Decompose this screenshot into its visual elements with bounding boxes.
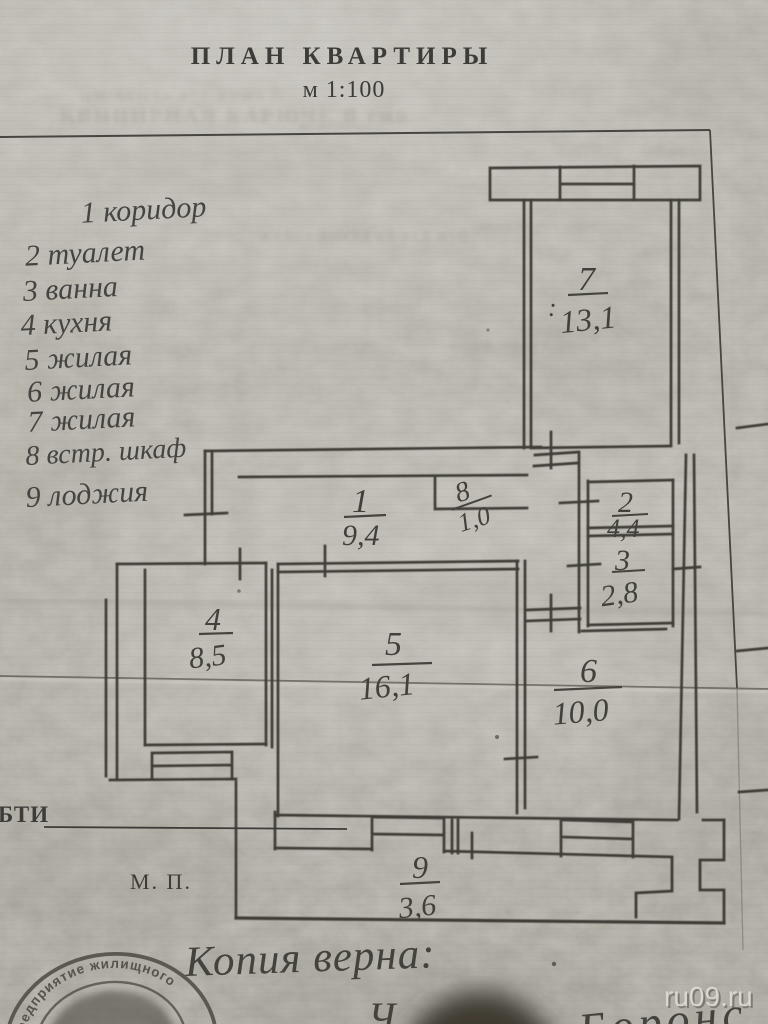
svg-text:3,6: 3,6 bbox=[396, 888, 438, 925]
svg-text:5: 5 bbox=[385, 626, 402, 663]
svg-text:мвыс ап нив лมых: мвыс ап нив лมых bbox=[480, 218, 598, 234]
svg-text:М. П.: М. П. bbox=[130, 869, 192, 894]
svg-text:ывапр мюежstarted: ывапр мюежstarted bbox=[450, 338, 587, 354]
svg-text:квр: квр bbox=[710, 368, 729, 383]
svg-text:Ч: Ч bbox=[368, 994, 398, 1024]
svg-text:6: 6 bbox=[580, 653, 597, 690]
svg-text:3 ванна: 3 ванна bbox=[21, 270, 119, 308]
svg-text:8,5: 8,5 bbox=[187, 638, 228, 675]
svg-text:жилон выквд ся вкд муб: жилон выквд ся вкд муб bbox=[259, 227, 470, 244]
svg-text:2,8: 2,8 bbox=[598, 575, 640, 613]
svg-text:БТИ: БТИ bbox=[0, 802, 49, 827]
svg-text:ым чтыва ате кнмч太: ым чтыва ате кнмч太 bbox=[80, 85, 287, 104]
svg-text:ru09.ru: ru09.ru bbox=[664, 981, 753, 1012]
svg-text:4: 4 bbox=[205, 601, 221, 637]
svg-text::: : bbox=[548, 293, 557, 322]
svg-text:9: 9 bbox=[412, 849, 428, 885]
svg-text:16,1: 16,1 bbox=[357, 665, 416, 707]
svg-text:двет жт: двет жт bbox=[640, 144, 685, 159]
svg-text:4 кухня: 4 кухня bbox=[20, 304, 113, 342]
svg-text:7: 7 bbox=[578, 261, 597, 298]
svg-text:2 туалет: 2 туалет bbox=[24, 234, 146, 273]
svg-text:ыват: ыват bbox=[690, 289, 718, 304]
svg-text:Копия верна:: Копия верна: bbox=[183, 930, 436, 986]
svg-text:ПЛАН КВАРТИРЫ: ПЛАН КВАРТИРЫ bbox=[191, 43, 494, 70]
svg-text:на живмень: на живмень bbox=[300, 119, 370, 134]
svg-text:м 1:100: м 1:100 bbox=[303, 77, 386, 103]
svg-text:7 жилая: 7 жилая bbox=[27, 400, 136, 439]
svg-text:1: 1 bbox=[352, 483, 369, 520]
svg-text:10,0: 10,0 bbox=[551, 691, 610, 732]
svg-text:9 лоджия: 9 лоджия bbox=[25, 475, 149, 514]
svg-text:витккр: витккр bbox=[640, 648, 684, 664]
svg-text:4,4: 4,4 bbox=[607, 514, 640, 543]
svg-text:1 коридор: 1 коридор bbox=[80, 190, 207, 230]
svg-text:ы-мз: ы-мз bbox=[700, 29, 729, 44]
svg-text:9,4: 9,4 bbox=[342, 519, 380, 552]
svg-text:13,1: 13,1 bbox=[558, 298, 617, 340]
